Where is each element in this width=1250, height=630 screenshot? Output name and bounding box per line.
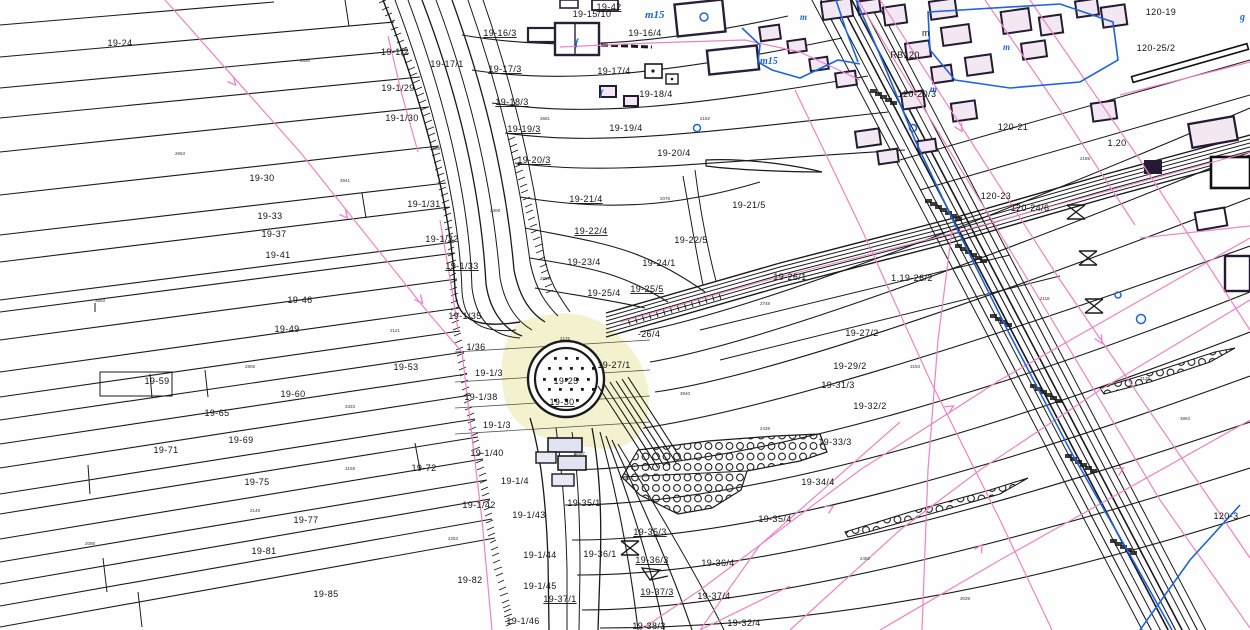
svg-text:19-36/1: 19-36/1: [583, 549, 616, 559]
svg-text:19-1/29: 19-1/29: [381, 83, 414, 93]
svg-text:2808: 2808: [245, 364, 256, 369]
svg-text:19-75: 19-75: [244, 477, 269, 487]
svg-text:-26/4: -26/4: [638, 329, 661, 339]
svg-text:2148: 2148: [250, 508, 261, 513]
svg-text:19-49: 19-49: [274, 324, 299, 334]
svg-text:19-1/2: 19-1/2: [381, 47, 409, 57]
svg-text:19-17/4: 19-17/4: [597, 66, 630, 76]
svg-text:19-17/1: 19-17/1: [430, 59, 463, 69]
svg-text:19-16/3: 19-16/3: [483, 28, 516, 38]
svg-text:19-1/35: 19-1/35: [448, 311, 481, 321]
svg-text:19-46: 19-46: [287, 295, 312, 305]
svg-text:120-20/3: 120-20/3: [898, 89, 937, 99]
svg-text:3128: 3128: [1140, 376, 1151, 381]
svg-text:19-37/4: 19-37/4: [697, 591, 730, 601]
svg-text:19-20/4: 19-20/4: [657, 148, 690, 158]
svg-text:19-35/3: 19-35/3: [633, 527, 666, 537]
svg-text:2118: 2118: [1040, 296, 1050, 301]
svg-text:19-18/4: 19-18/4: [639, 89, 672, 99]
svg-text:3193: 3193: [910, 364, 921, 369]
svg-text:19-30: 19-30: [549, 397, 574, 407]
svg-text:19-31/3: 19-31/3: [821, 380, 854, 390]
svg-text:19-19/4: 19-19/4: [609, 123, 642, 133]
svg-text:19-1/30: 19-1/30: [385, 113, 418, 123]
svg-text:2176: 2176: [560, 336, 571, 341]
svg-text:19-23/4: 19-23/4: [567, 257, 600, 267]
svg-text:19-30: 19-30: [249, 173, 274, 183]
svg-text:2308: 2308: [490, 208, 501, 213]
svg-text:19-85: 19-85: [313, 589, 338, 599]
svg-text:120-19: 120-19: [1146, 7, 1176, 17]
svg-text:19-21/5: 19-21/5: [732, 200, 765, 210]
svg-text:19-38/3: 19-38/3: [632, 621, 665, 630]
svg-text:120-23: 120-23: [981, 191, 1011, 201]
svg-text:19-71: 19-71: [153, 445, 178, 455]
svg-text:3681: 3681: [540, 116, 551, 121]
svg-text:2253: 2253: [448, 536, 459, 541]
svg-text:19-41: 19-41: [265, 250, 290, 260]
svg-text:2098: 2098: [85, 541, 96, 546]
svg-text:19-82: 19-82: [457, 575, 482, 585]
svg-text:19-27/1: 19-27/1: [597, 360, 630, 370]
svg-text:19-1/43: 19-1/43: [512, 510, 545, 520]
svg-text:19-1/3: 19-1/3: [483, 420, 511, 430]
svg-text:19-37: 19-37: [261, 229, 286, 239]
svg-text:2663: 2663: [175, 151, 186, 156]
svg-text:19-33/3: 19-33/3: [818, 437, 851, 447]
svg-text:19-17/3: 19-17/3: [488, 64, 521, 74]
svg-text:19-37/3: 19-37/3: [640, 587, 673, 597]
svg-text:19-77: 19-77: [293, 515, 318, 525]
svg-text:19-34/4: 19-34/4: [801, 477, 834, 487]
svg-text:19-27/2: 19-27/2: [845, 328, 878, 338]
svg-text:3097: 3097: [575, 451, 586, 456]
svg-text:19-69: 19-69: [228, 435, 253, 445]
svg-text:19-32/4: 19-32/4: [727, 618, 760, 628]
svg-text:120-25/2: 120-25/2: [1137, 43, 1176, 53]
svg-text:3940: 3940: [680, 391, 691, 396]
svg-text:1.19-26/2: 1.19-26/2: [891, 273, 933, 283]
svg-text:m15: m15: [760, 56, 778, 67]
svg-text:3039: 3039: [960, 596, 971, 601]
svg-text:g: g: [1239, 12, 1245, 23]
svg-text:120-24/6: 120-24/6: [1011, 203, 1050, 213]
svg-text:19-25/4: 19-25/4: [587, 288, 620, 298]
svg-text:19-60: 19-60: [280, 389, 305, 399]
svg-text:19-25: 19-25: [553, 376, 578, 386]
svg-text:2121: 2121: [390, 328, 401, 333]
svg-text:2869: 2869: [540, 276, 551, 281]
svg-text:19-1/3: 19-1/3: [475, 368, 503, 378]
svg-text:3333: 3333: [345, 404, 356, 409]
svg-text:m: m: [800, 12, 807, 22]
svg-text:2192: 2192: [700, 116, 711, 121]
svg-text:19-32/2: 19-32/2: [853, 401, 886, 411]
svg-text:19-1/45: 19-1/45: [523, 581, 556, 591]
svg-text:m: m: [922, 28, 930, 38]
svg-text:2076: 2076: [660, 196, 671, 201]
svg-text:19-33: 19-33: [257, 211, 282, 221]
svg-text:2143: 2143: [620, 476, 631, 481]
svg-text:19-1/40: 19-1/40: [470, 448, 503, 458]
svg-text:19-1/44: 19-1/44: [523, 550, 556, 560]
svg-text:1/36: 1/36: [466, 342, 485, 352]
svg-text:19-24: 19-24: [107, 38, 132, 48]
svg-text:m: m: [1003, 42, 1010, 52]
svg-text:19-1/31: 19-1/31: [407, 199, 440, 209]
svg-text:19-36/3: 19-36/3: [635, 555, 668, 565]
svg-text:19-81: 19-81: [251, 546, 276, 556]
svg-text:2185: 2185: [1080, 156, 1091, 161]
svg-text:19-1/46: 19-1/46: [506, 616, 539, 626]
svg-text:19-22/4: 19-22/4: [574, 226, 607, 236]
svg-text:19-36/4: 19-36/4: [701, 558, 734, 568]
svg-text:19-35/4: 19-35/4: [758, 514, 791, 524]
svg-text:m15: m15: [645, 9, 665, 21]
svg-text:2439: 2439: [760, 426, 771, 431]
svg-text:19-16/4: 19-16/4: [628, 28, 661, 38]
svg-text:19-37/1: 19-37/1: [543, 594, 576, 604]
svg-text:19-1/32: 19-1/32: [425, 234, 458, 244]
svg-text:19-21/4: 19-21/4: [569, 194, 602, 204]
svg-text:19-15/10: 19-15/10: [573, 9, 612, 19]
svg-text:19-35/1: 19-35/1: [567, 498, 600, 508]
svg-text:120-21: 120-21: [998, 122, 1028, 132]
svg-text:2748: 2748: [760, 301, 771, 306]
svg-text:120-3: 120-3: [1213, 511, 1238, 521]
svg-text:19-20/3: 19-20/3: [517, 155, 550, 165]
svg-text:19-1/33: 19-1/33: [445, 261, 478, 271]
svg-text:19-24/1: 19-24/1: [642, 258, 675, 268]
svg-text:2492: 2492: [860, 556, 871, 561]
svg-text:3158: 3158: [345, 466, 356, 471]
svg-text:19-53: 19-53: [393, 362, 418, 372]
svg-text:19-72: 19-72: [411, 463, 436, 473]
svg-text:RB120: RB120: [890, 50, 920, 60]
svg-text:19-19/3: 19-19/3: [507, 124, 540, 134]
svg-text:19-1/42: 19-1/42: [462, 500, 495, 510]
svg-text:19-22/5: 19-22/5: [674, 235, 707, 245]
svg-text:3693: 3693: [95, 298, 106, 303]
svg-text:19-26/1: 19-26/1: [773, 272, 806, 282]
svg-text:3941: 3941: [340, 178, 351, 183]
svg-text:19-29/2: 19-29/2: [833, 361, 866, 371]
svg-text:19-1/38: 19-1/38: [464, 392, 497, 402]
svg-text:19-18/3: 19-18/3: [495, 97, 528, 107]
svg-text:19-1/4: 19-1/4: [501, 476, 529, 486]
svg-text:2856: 2856: [300, 58, 311, 63]
svg-text:19-65: 19-65: [204, 408, 229, 418]
svg-text:3863: 3863: [1180, 416, 1191, 421]
svg-text:2888: 2888: [430, 146, 441, 151]
svg-text:1.20: 1.20: [1107, 138, 1126, 148]
svg-text:19-59: 19-59: [144, 376, 169, 386]
svg-text:19-25/5: 19-25/5: [630, 284, 663, 294]
